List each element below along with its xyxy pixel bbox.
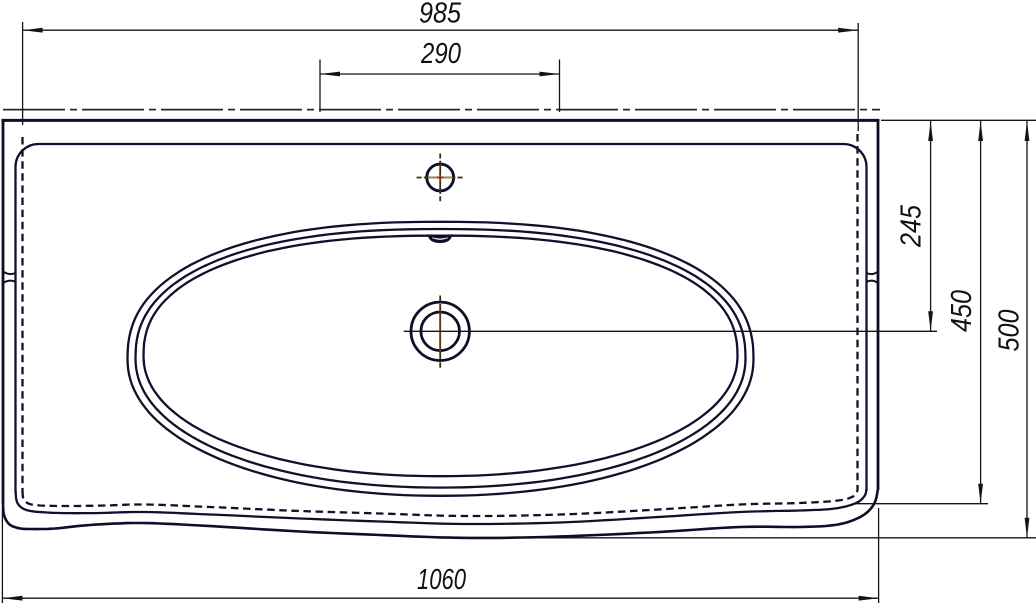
svg-text:500: 500 [994, 309, 1026, 351]
svg-text:245: 245 [896, 205, 928, 248]
svg-text:985: 985 [419, 0, 461, 30]
svg-text:450: 450 [946, 290, 978, 332]
svg-text:1060: 1060 [417, 564, 466, 596]
svg-text:290: 290 [420, 38, 461, 70]
